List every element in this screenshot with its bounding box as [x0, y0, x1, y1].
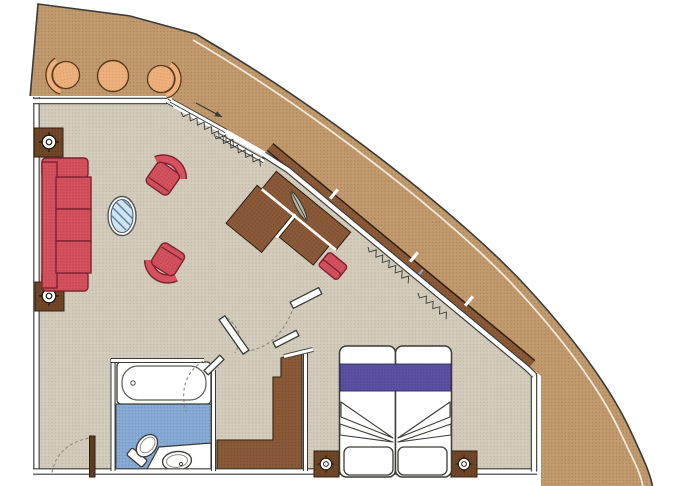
bathroom	[116, 361, 211, 472]
balcony-table	[98, 61, 129, 92]
sofa	[42, 158, 91, 291]
pillow	[398, 447, 447, 475]
pillow	[344, 447, 393, 475]
bathtub	[117, 362, 211, 404]
bed-runner	[340, 364, 451, 391]
suite-floor-plan	[0, 0, 680, 486]
entry-door-leaf	[90, 436, 96, 477]
floor-plan-canvas	[0, 0, 680, 486]
double-bed	[340, 346, 452, 477]
